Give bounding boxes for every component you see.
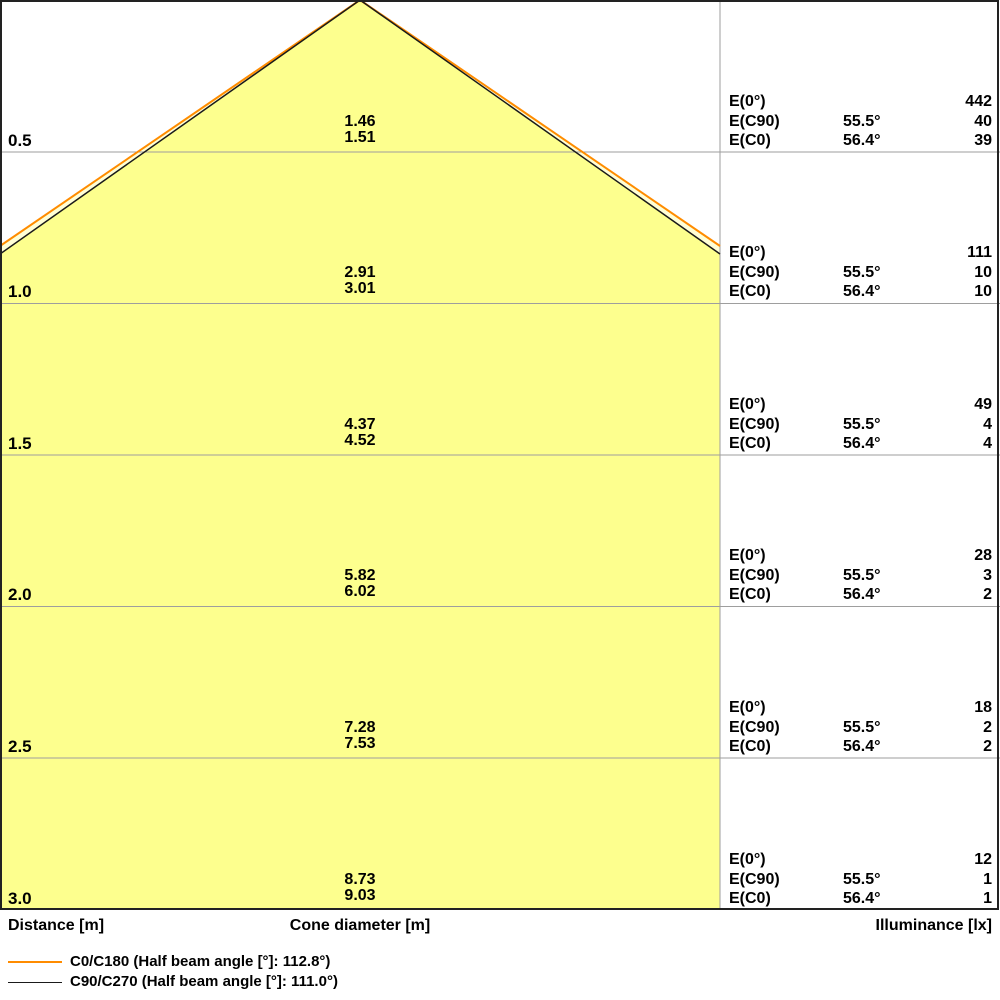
ec0-angle: 56.4° (843, 282, 881, 302)
ec90-value: 3 (983, 566, 992, 586)
cone-diameter-c0-value: 4.52 (260, 433, 460, 449)
illuminance-axis-label: Illuminance [lx] (876, 917, 992, 935)
distance-label: 3.0 (8, 890, 32, 908)
ec0-row: E(C0) 56.4° 39 (729, 131, 992, 151)
cone-diameter-c0-value: 7.53 (260, 736, 460, 752)
ec90-row: E(C90) 55.5° 10 (729, 263, 992, 283)
ec0-value: 39 (974, 131, 992, 151)
e0-label: E(0°) (729, 851, 766, 868)
cone-diameter-c90-value: 2.91 (260, 265, 460, 281)
legend-line-icon-c0 (8, 961, 62, 963)
ec90-row: E(C90) 55.5° 40 (729, 112, 992, 132)
ec0-row: E(C0) 56.4° 1 (729, 889, 992, 909)
distance-label: 1.5 (8, 435, 32, 453)
ec90-angle: 55.5° (843, 112, 881, 132)
legend-line-icon-c90 (8, 982, 62, 983)
cone-diameter-c90-value: 5.82 (260, 568, 460, 584)
ec90-label: E(C90) (729, 416, 780, 433)
e0-row: E(0°) 28 (729, 546, 992, 566)
illuminance-block: E(0°) 12 E(C90) 55.5° 1 E(C0) 56.4° 1 (729, 850, 992, 909)
ec0-label: E(C0) (729, 738, 771, 755)
legend-label-c0: C0/C180 (Half beam angle [°]: 112.8°) (70, 953, 330, 970)
e0-value: 28 (974, 546, 992, 566)
distance-label: 2.0 (8, 586, 32, 604)
ec0-value: 1 (983, 889, 992, 909)
ec0-value: 2 (983, 585, 992, 605)
ec90-value: 10 (974, 263, 992, 283)
cone-diameter-values: 4.37 4.52 (260, 417, 460, 449)
ec90-value: 4 (983, 415, 992, 435)
ec90-value: 2 (983, 718, 992, 738)
ec0-row: E(C0) 56.4° 2 (729, 737, 992, 757)
cone-diameter-c0-value: 1.51 (260, 130, 460, 146)
ec0-row: E(C0) 56.4° 2 (729, 585, 992, 605)
e0-value: 12 (974, 850, 992, 870)
legend-label-c90: C90/C270 (Half beam angle [°]: 111.0°) (70, 973, 338, 990)
cone-diameter-c90-value: 8.73 (260, 872, 460, 888)
ec0-label: E(C0) (729, 586, 771, 603)
e0-row: E(0°) 49 (729, 395, 992, 415)
cone-diameter-c90-value: 7.28 (260, 720, 460, 736)
e0-value: 18 (974, 698, 992, 718)
ec90-angle: 55.5° (843, 415, 881, 435)
cone-diameter-c0-value: 9.03 (260, 888, 460, 904)
cone-diameter-values: 7.28 7.53 (260, 720, 460, 752)
legend-item-c0-c180: C0/C180 (Half beam angle [°]: 112.8°) (8, 952, 330, 972)
e0-value: 49 (974, 395, 992, 415)
ec0-label: E(C0) (729, 435, 771, 452)
illuminance-block: E(0°) 442 E(C90) 55.5° 40 E(C0) 56.4° 39 (729, 92, 992, 151)
e0-label: E(0°) (729, 547, 766, 564)
ec0-angle: 56.4° (843, 131, 881, 151)
distance-label: 0.5 (8, 132, 32, 150)
ec90-value: 1 (983, 870, 992, 890)
e0-row: E(0°) 18 (729, 698, 992, 718)
ec90-label: E(C90) (729, 719, 780, 736)
e0-value: 442 (965, 92, 992, 112)
e0-label: E(0°) (729, 699, 766, 716)
ec90-row: E(C90) 55.5° 3 (729, 566, 992, 586)
ec0-angle: 56.4° (843, 585, 881, 605)
ec0-angle: 56.4° (843, 434, 881, 454)
ec90-label: E(C90) (729, 567, 780, 584)
ec90-label: E(C90) (729, 871, 780, 888)
ec0-row: E(C0) 56.4° 4 (729, 434, 992, 454)
ec0-label: E(C0) (729, 283, 771, 300)
ec0-value: 4 (983, 434, 992, 454)
distance-axis-label: Distance [m] (8, 917, 104, 935)
cone-diameter-values: 1.46 1.51 (260, 114, 460, 146)
e0-row: E(0°) 12 (729, 850, 992, 870)
ec90-angle: 55.5° (843, 718, 881, 738)
e0-row: E(0°) 111 (729, 243, 992, 263)
ec90-angle: 55.5° (843, 870, 881, 890)
e0-label: E(0°) (729, 93, 766, 110)
distance-label: 1.0 (8, 283, 32, 301)
legend-item-c90-c270: C90/C270 (Half beam angle [°]: 111.0°) (8, 972, 338, 992)
ec90-angle: 55.5° (843, 263, 881, 283)
ec90-label: E(C90) (729, 264, 780, 281)
ec0-row: E(C0) 56.4° 10 (729, 282, 992, 302)
ec0-angle: 56.4° (843, 737, 881, 757)
cone-diameter-values: 8.73 9.03 (260, 872, 460, 904)
ec0-value: 10 (974, 282, 992, 302)
ec0-label: E(C0) (729, 132, 771, 149)
ec0-angle: 56.4° (843, 889, 881, 909)
ec0-value: 2 (983, 737, 992, 757)
cone-diameter-c90-value: 4.37 (260, 417, 460, 433)
illuminance-block: E(0°) 28 E(C90) 55.5° 3 E(C0) 56.4° 2 (729, 546, 992, 605)
cone-diameter-c0-value: 6.02 (260, 584, 460, 600)
ec90-row: E(C90) 55.5° 2 (729, 718, 992, 738)
cone-diameter-c90-value: 1.46 (260, 114, 460, 130)
distance-label: 2.5 (8, 738, 32, 756)
cone-diameter-values: 5.82 6.02 (260, 568, 460, 600)
e0-label: E(0°) (729, 244, 766, 261)
cone-diameter-axis-label: Cone diameter [m] (260, 917, 460, 935)
ec0-label: E(C0) (729, 890, 771, 907)
ec90-label: E(C90) (729, 113, 780, 130)
illuminance-block: E(0°) 18 E(C90) 55.5° 2 E(C0) 56.4° 2 (729, 698, 992, 757)
cone-diagram-page: 0.5 1.46 1.51 E(0°) 442 E(C90) 55.5° 40 … (0, 0, 1000, 1000)
e0-label: E(0°) (729, 396, 766, 413)
e0-row: E(0°) 442 (729, 92, 992, 112)
illuminance-block: E(0°) 111 E(C90) 55.5° 10 E(C0) 56.4° 10 (729, 243, 992, 302)
ec90-angle: 55.5° (843, 566, 881, 586)
e0-value: 111 (967, 243, 992, 263)
ec90-row: E(C90) 55.5° 1 (729, 870, 992, 890)
ec90-value: 40 (974, 112, 992, 132)
cone-diameter-values: 2.91 3.01 (260, 265, 460, 297)
illuminance-block: E(0°) 49 E(C90) 55.5° 4 E(C0) 56.4° 4 (729, 395, 992, 454)
cone-diameter-c0-value: 3.01 (260, 281, 460, 297)
ec90-row: E(C90) 55.5° 4 (729, 415, 992, 435)
